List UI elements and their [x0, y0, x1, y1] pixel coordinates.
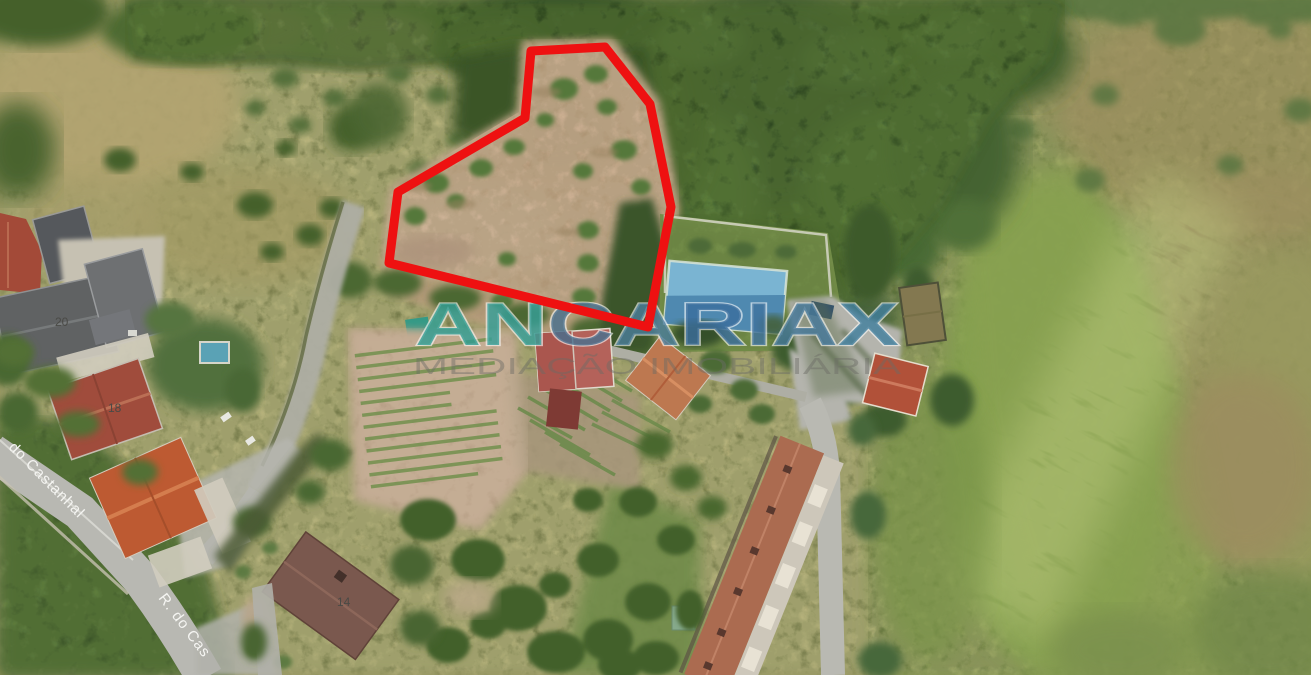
svg-text:14: 14: [337, 595, 351, 609]
svg-text:20: 20: [55, 315, 69, 329]
svg-text:MEDIAÇÃO IMOBILIÁRIA: MEDIAÇÃO IMOBILIÁRIA: [413, 353, 902, 379]
svg-text:18: 18: [108, 401, 122, 415]
